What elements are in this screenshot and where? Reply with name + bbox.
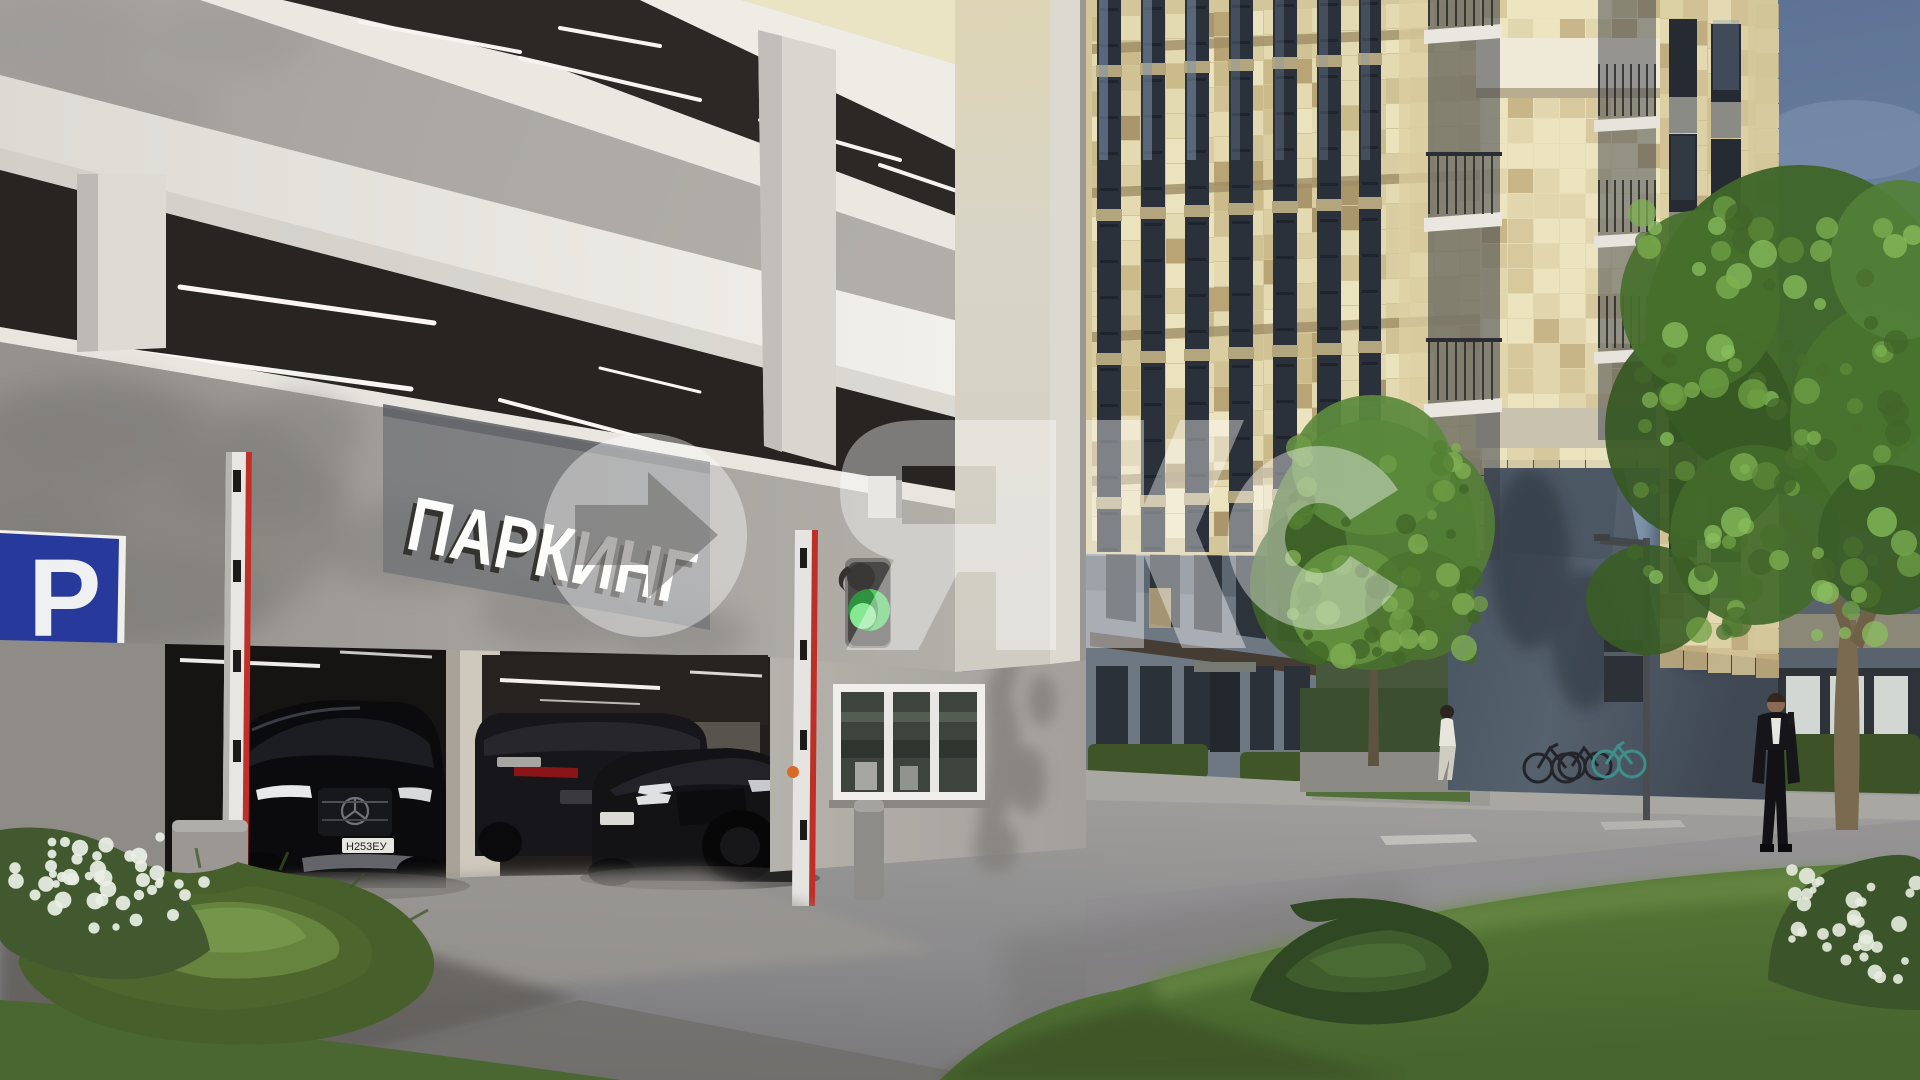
svg-text:Н253ЕУ: Н253ЕУ [346,841,388,853]
